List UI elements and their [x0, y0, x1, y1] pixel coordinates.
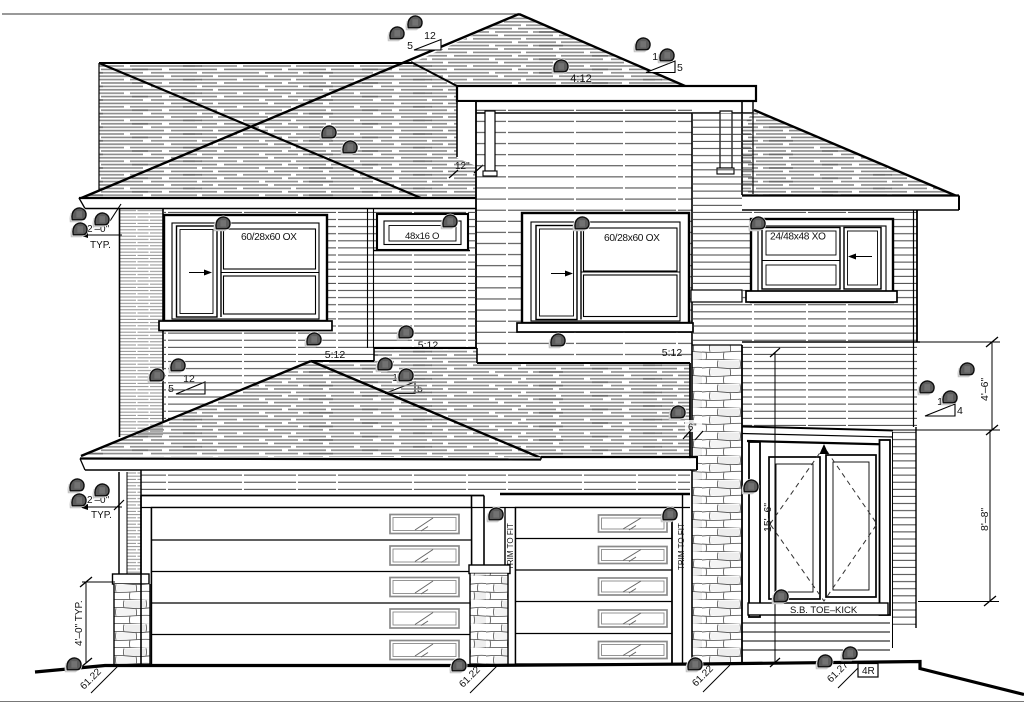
- svg-text:5: 5: [407, 40, 413, 52]
- svg-text:4'–6": 4'–6": [979, 377, 991, 401]
- svg-text:5:12: 5:12: [325, 349, 346, 361]
- svg-text:24/48x48 XO: 24/48x48 XO: [770, 232, 826, 243]
- svg-text:4R: 4R: [862, 666, 875, 677]
- svg-text:4'–0" TYP.: 4'–0" TYP.: [74, 600, 85, 646]
- svg-text:4: 4: [957, 405, 963, 417]
- svg-text:5:12: 5:12: [418, 340, 439, 352]
- svg-text:8'–8": 8'–8": [979, 507, 991, 531]
- svg-text:5: 5: [677, 62, 683, 74]
- svg-text:60/28x60 OX: 60/28x60 OX: [604, 233, 660, 244]
- svg-text:12: 12: [424, 30, 436, 42]
- svg-text:TRIM TO FIT: TRIM TO FIT: [506, 523, 515, 570]
- svg-text:5:12: 5:12: [662, 347, 683, 359]
- svg-text:15'–6": 15'–6": [762, 503, 774, 532]
- svg-text:61.22: 61.22: [78, 666, 104, 692]
- svg-text:48x16 O: 48x16 O: [405, 231, 439, 242]
- svg-text:60/28x60 OX: 60/28x60 OX: [241, 232, 297, 243]
- svg-text:S.B. TOE–KICK: S.B. TOE–KICK: [790, 605, 858, 616]
- svg-text:4:12: 4:12: [570, 73, 591, 85]
- svg-text:TYP.: TYP.: [91, 510, 112, 521]
- svg-text:TYP.: TYP.: [90, 240, 111, 251]
- svg-text:TRIM TO FIT: TRIM TO FIT: [677, 523, 686, 570]
